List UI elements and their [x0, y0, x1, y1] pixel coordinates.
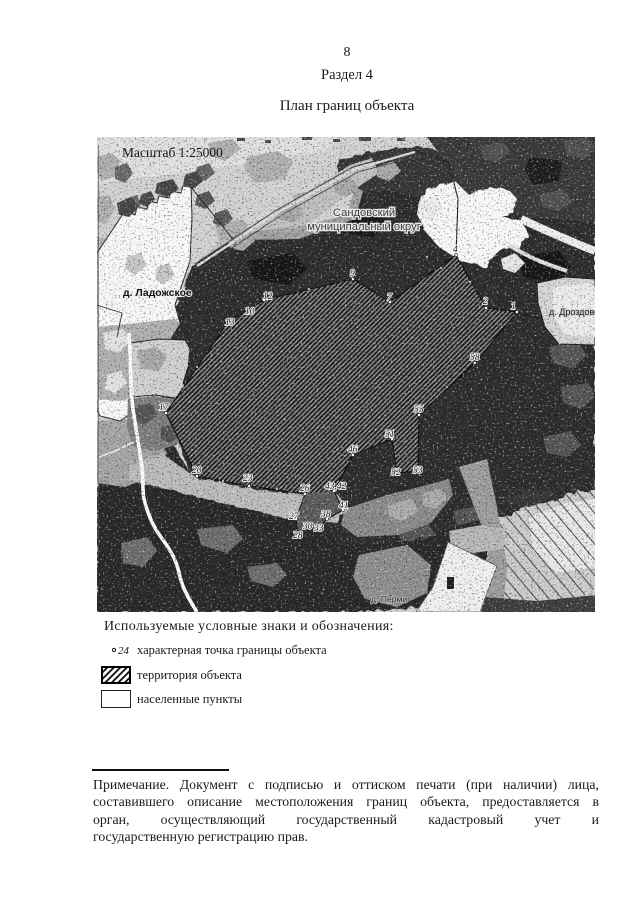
svg-text:12: 12	[263, 292, 273, 302]
svg-text:58: 58	[470, 353, 480, 363]
svg-text:53: 53	[413, 466, 423, 476]
svg-text:43,42: 43,42	[325, 482, 347, 492]
svg-text:38: 38	[320, 510, 331, 520]
svg-text:52: 52	[391, 468, 401, 478]
svg-text:20: 20	[192, 466, 202, 476]
svg-text:д. Перми: д. Перми	[371, 594, 407, 604]
svg-text:27: 27	[289, 512, 300, 522]
svg-text:30: 30	[302, 522, 313, 532]
svg-text:24: 24	[118, 645, 130, 657]
svg-text:13: 13	[225, 318, 235, 328]
svg-text:д. Дроздово: д. Дроздово	[549, 307, 595, 317]
svg-text:муниципальный округ: муниципальный округ	[307, 221, 421, 233]
svg-text:9: 9	[350, 269, 355, 279]
svg-text:1: 1	[511, 302, 516, 312]
svg-text:33: 33	[313, 524, 324, 534]
svg-text:4: 4	[453, 245, 458, 255]
svg-text:46: 46	[348, 445, 358, 455]
svg-text:д. Ладожское: д. Ладожское	[123, 288, 192, 299]
svg-text:26: 26	[300, 484, 310, 494]
svg-text:17: 17	[159, 403, 170, 413]
svg-text:28: 28	[293, 531, 303, 541]
svg-text:51: 51	[385, 430, 395, 440]
svg-text:Сандовский: Сандовский	[333, 207, 395, 219]
svg-text:10: 10	[245, 307, 255, 317]
svg-text:41: 41	[339, 501, 349, 511]
svg-text:55: 55	[414, 405, 424, 415]
svg-text:2: 2	[483, 297, 488, 307]
svg-text:23: 23	[243, 474, 253, 484]
svg-text:Масштаб 1:25000: Масштаб 1:25000	[122, 145, 223, 160]
